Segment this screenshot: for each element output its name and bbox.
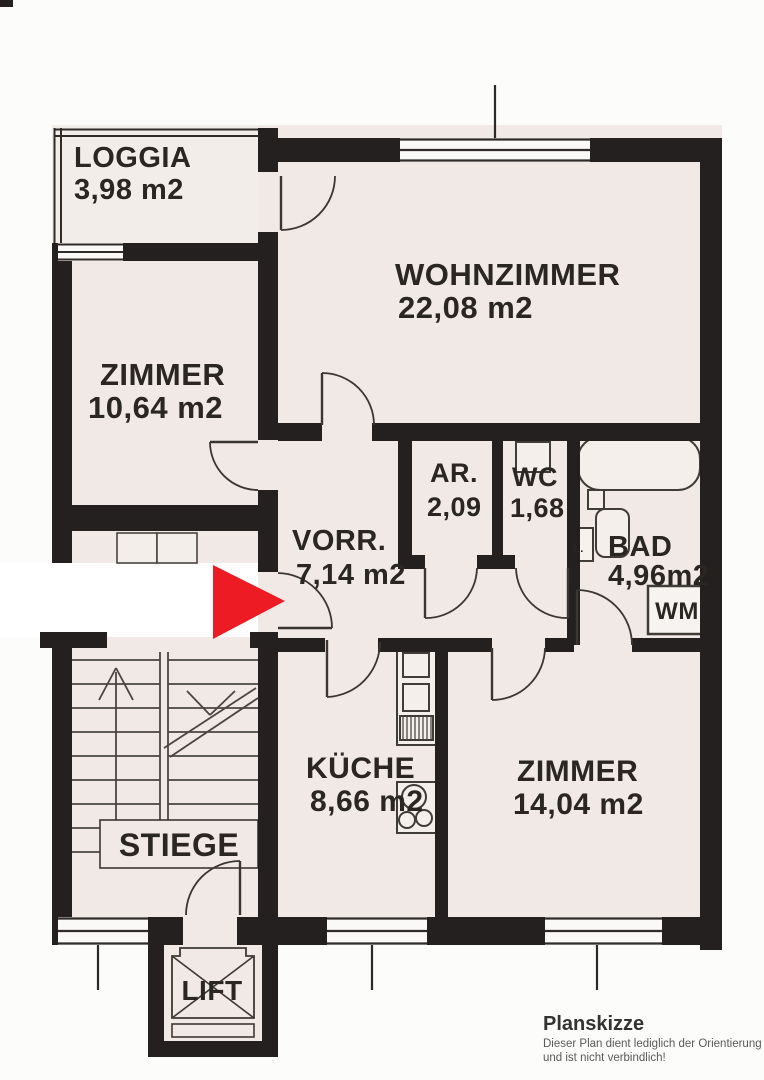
bath-connector <box>588 490 604 509</box>
room-area-kueche: 8,66 m2 <box>310 785 424 818</box>
floorplan-drawing: LOGGIA 3,98 m2 WOHNZIMMER 22,08 m2 ZIMME… <box>0 0 764 1080</box>
room-label-vorraum: VORR. <box>292 525 386 557</box>
room-label-bad: BAD <box>608 531 672 563</box>
room-label-kueche: KÜCHE <box>306 752 415 785</box>
room-label-loggia: LOGGIA <box>74 142 191 174</box>
room-area-vorraum: 7,14 m2 <box>296 559 406 591</box>
room-area-bad: 4,96m2 <box>608 560 709 592</box>
scan-corner-mark <box>0 0 13 7</box>
room-area-wohnzimmer: 22,08 m2 <box>398 290 533 325</box>
floorplan-page: LOGGIA 3,98 m2 WOHNZIMMER 22,08 m2 ZIMME… <box>0 0 764 1080</box>
room-label-wohnzimmer: WOHNZIMMER <box>395 257 620 292</box>
kitchen-cabinet <box>403 653 429 677</box>
room-label-zimmer-1: ZIMMER <box>100 357 225 392</box>
footer-note: Planskizze Dieser Plan dient lediglich d… <box>543 1013 762 1064</box>
footer-disclaimer-line1: Dieser Plan dient lediglich der Orientie… <box>543 1038 762 1050</box>
kitchen-cabinet <box>403 684 429 711</box>
room-area-zimmer-1: 10,64 m2 <box>88 390 223 425</box>
room-label-zimmer-2: ZIMMER <box>517 755 638 788</box>
footer-disclaimer-line2: und ist nicht verbindlich! <box>543 1052 666 1064</box>
room-area-loggia: 3,98 m2 <box>74 174 184 206</box>
room-area-zimmer-2: 14,04 m2 <box>513 788 644 821</box>
footer-title: Planskizze <box>543 1013 644 1035</box>
room-area-abstellraum: 2,09 <box>427 492 482 522</box>
stairs-label: STIEGE <box>119 827 239 863</box>
room-area-wc: 1,68 <box>510 493 565 523</box>
lift-label: LIFT <box>181 975 242 1006</box>
room-label-wc: WC <box>512 462 558 492</box>
room-label-abstellraum: AR. <box>430 458 478 488</box>
washing-machine-label: WM <box>655 598 699 625</box>
kitchen-sink-drainer <box>400 716 433 740</box>
bathtub <box>578 437 700 490</box>
closet-label: L. <box>573 543 584 555</box>
landing-frames <box>117 533 197 563</box>
